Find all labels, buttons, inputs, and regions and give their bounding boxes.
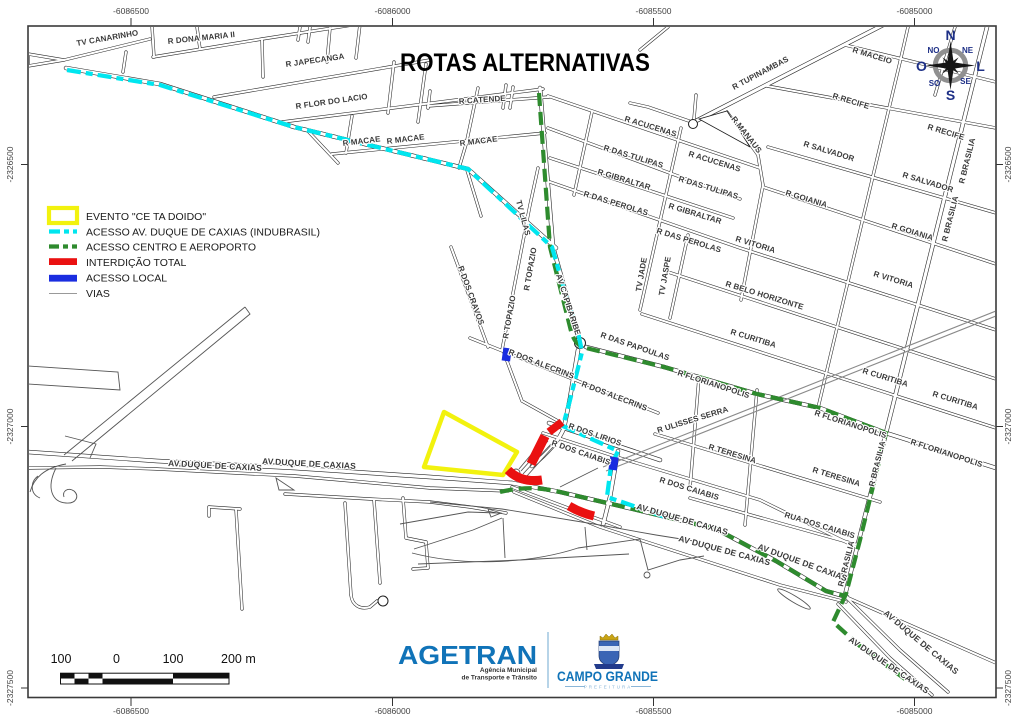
svg-text:200 m: 200 m — [221, 652, 256, 666]
svg-text:ACESSO CENTRO E AEROPORTO: ACESSO CENTRO E AEROPORTO — [86, 242, 256, 254]
svg-text:-6086500: -6086500 — [113, 706, 149, 716]
svg-text:O: O — [916, 58, 927, 74]
svg-text:-6086000: -6086000 — [375, 706, 411, 716]
svg-text:SE: SE — [960, 77, 971, 86]
svg-text:CAMPO GRANDE: CAMPO GRANDE — [557, 668, 658, 684]
svg-text:L: L — [976, 58, 985, 74]
svg-text:INTERDIÇÃO TOTAL: INTERDIÇÃO TOTAL — [86, 256, 187, 269]
svg-text:ROTAS ALTERNATIVAS: ROTAS ALTERNATIVAS — [400, 49, 650, 77]
svg-text:100: 100 — [163, 652, 184, 666]
svg-text:-6086500: -6086500 — [113, 6, 149, 16]
svg-text:NO: NO — [928, 46, 940, 55]
svg-text:AGETRAN: AGETRAN — [398, 640, 537, 670]
svg-text:-2327500: -2327500 — [1003, 670, 1013, 706]
svg-text:-2326500: -2326500 — [5, 146, 15, 182]
svg-text:SO: SO — [929, 79, 941, 88]
svg-text:-6085000: -6085000 — [897, 6, 933, 16]
svg-text:N: N — [945, 27, 955, 43]
svg-text:EVENTO "CE TA DOIDO": EVENTO "CE TA DOIDO" — [86, 211, 206, 223]
svg-text:S: S — [946, 87, 955, 103]
svg-text:0: 0 — [113, 652, 120, 666]
svg-text:-2326500: -2326500 — [1003, 146, 1013, 182]
svg-text:NE: NE — [962, 46, 974, 55]
svg-text:PREFEITURA: PREFEITURA — [584, 685, 633, 690]
svg-text:100: 100 — [51, 652, 72, 666]
svg-text:-2327000: -2327000 — [1003, 408, 1013, 444]
svg-text:de Transporte e Trânsito: de Transporte e Trânsito — [462, 675, 538, 682]
svg-text:-6085500: -6085500 — [636, 706, 672, 716]
svg-text:-2327500: -2327500 — [5, 670, 15, 706]
svg-text:Agência Municipal: Agência Municipal — [480, 667, 537, 674]
svg-text:-6085000: -6085000 — [897, 706, 933, 716]
svg-text:-6085500: -6085500 — [636, 6, 672, 16]
svg-text:-6086000: -6086000 — [375, 6, 411, 16]
svg-text:-2327000: -2327000 — [5, 408, 15, 444]
svg-text:VIAS: VIAS — [86, 288, 110, 300]
svg-text:ACESSO LOCAL: ACESSO LOCAL — [86, 273, 167, 285]
svg-text:ACESSO AV. DUQUE DE CAXIAS (IN: ACESSO AV. DUQUE DE CAXIAS (INDUBRASIL) — [86, 227, 320, 239]
